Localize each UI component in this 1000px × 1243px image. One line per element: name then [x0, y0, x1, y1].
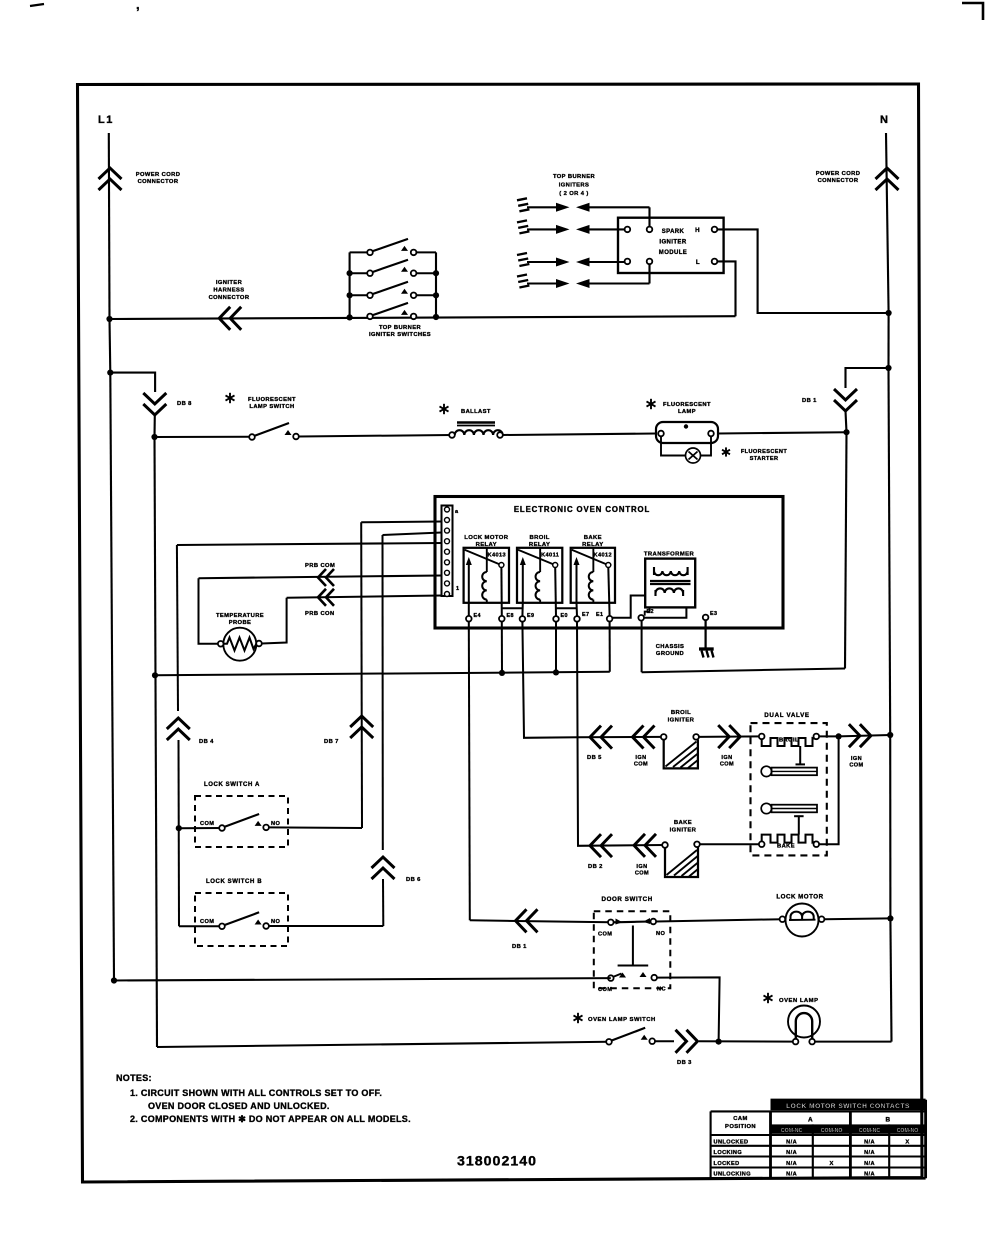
svg-text:LAMP: LAMP	[678, 409, 696, 415]
svg-text:1. CIRCUIT SHOWN WITH ALL CONT: 1. CIRCUIT SHOWN WITH ALL CONTROLS SET T…	[130, 1088, 382, 1098]
svg-text:BALLAST: BALLAST	[461, 409, 491, 415]
svg-text:COM-NC: COM-NC	[859, 1128, 881, 1134]
svg-text:TEMPERATURE: TEMPERATURE	[216, 613, 264, 619]
svg-text:FLUORESCENT: FLUORESCENT	[663, 402, 711, 408]
svg-text:K4012: K4012	[594, 553, 612, 559]
svg-text:LOCK MOTOR: LOCK MOTOR	[776, 894, 823, 901]
svg-text:TRANSFORMER: TRANSFORMER	[644, 552, 695, 558]
svg-text:NO: NO	[656, 931, 665, 937]
svg-text:B: B	[885, 1116, 890, 1123]
svg-text:POWER CORD: POWER CORD	[816, 171, 861, 177]
svg-text:DB 1: DB 1	[512, 944, 527, 950]
svg-text:DB 2: DB 2	[588, 864, 603, 870]
svg-text:IGNITER: IGNITER	[668, 717, 695, 723]
svg-text:DB 8: DB 8	[177, 401, 192, 407]
svg-text:CONNECTOR: CONNECTOR	[138, 179, 179, 185]
svg-text:COM-NO: COM-NO	[821, 1128, 843, 1134]
svg-text:IGNITER SWITCHES: IGNITER SWITCHES	[369, 332, 431, 338]
svg-text:LAMP SWITCH: LAMP SWITCH	[249, 404, 294, 410]
svg-text:DB 1: DB 1	[802, 398, 817, 404]
svg-text:COM: COM	[634, 762, 648, 768]
svg-text:X: X	[829, 1161, 833, 1167]
svg-text:CHASSIS: CHASSIS	[656, 644, 685, 650]
svg-text:CONNECTOR: CONNECTOR	[818, 178, 859, 184]
svg-text:N/A: N/A	[864, 1139, 875, 1145]
svg-text:N/A: N/A	[864, 1161, 875, 1167]
svg-text:1: 1	[456, 586, 459, 592]
svg-text:COM-NC: COM-NC	[781, 1128, 803, 1134]
svg-text:OVEN LAMP SWITCH: OVEN LAMP SWITCH	[588, 1017, 656, 1023]
svg-text:E3: E3	[710, 611, 717, 617]
svg-text:K4011: K4011	[541, 553, 559, 559]
svg-text:BAKE: BAKE	[584, 535, 602, 541]
svg-text:H: H	[695, 227, 700, 234]
svg-text:COM-NO: COM-NO	[897, 1128, 919, 1134]
svg-text:CONNECTOR: CONNECTOR	[209, 295, 250, 301]
svg-text:POSITION: POSITION	[725, 1124, 756, 1130]
svg-text:LOCK MOTOR SWITCH CONTACTS: LOCK MOTOR SWITCH CONTACTS	[786, 1103, 910, 1110]
svg-text:DB 7: DB 7	[324, 739, 339, 745]
svg-text:TOP BURNER: TOP BURNER	[379, 325, 422, 331]
svg-text:DB 3: DB 3	[677, 1060, 692, 1066]
svg-text:IGN: IGN	[721, 755, 732, 761]
svg-text:CAM: CAM	[733, 1116, 747, 1122]
svg-text:IGN: IGN	[636, 864, 647, 870]
svg-text:OVEN LAMP: OVEN LAMP	[779, 998, 819, 1004]
svg-text:,: ,	[136, 0, 140, 12]
svg-text:E9: E9	[527, 613, 534, 619]
svg-text:N/A: N/A	[864, 1172, 875, 1178]
svg-text:HARNESS: HARNESS	[213, 287, 244, 293]
svg-text:N/A: N/A	[864, 1150, 875, 1156]
svg-text:STARTER: STARTER	[750, 456, 779, 462]
svg-text:IGN: IGN	[851, 756, 862, 762]
svg-text:E0: E0	[561, 613, 568, 619]
svg-text:IGN: IGN	[635, 755, 646, 761]
svg-text:L1: L1	[98, 114, 114, 126]
svg-text:( 2 OR 4 ): ( 2 OR 4 )	[559, 191, 588, 197]
svg-text:BROIL: BROIL	[779, 738, 799, 744]
svg-text:E1: E1	[596, 612, 603, 618]
svg-text:318002140: 318002140	[457, 1154, 537, 1170]
svg-text:DB 5: DB 5	[587, 755, 602, 761]
svg-text:RELAY: RELAY	[476, 542, 497, 548]
svg-text:COM: COM	[635, 871, 649, 877]
svg-text:NO: NO	[271, 821, 280, 827]
svg-text:COM: COM	[849, 763, 863, 769]
svg-text:MODULE: MODULE	[659, 250, 687, 256]
svg-text:OVEN DOOR CLOSED AND UNLOCKED.: OVEN DOOR CLOSED AND UNLOCKED.	[148, 1101, 330, 1111]
svg-text:RELAY: RELAY	[582, 542, 603, 548]
svg-text:NO: NO	[271, 919, 280, 925]
svg-text:RELAY: RELAY	[529, 542, 550, 548]
svg-text:BROIL: BROIL	[529, 535, 549, 541]
svg-text:COM: COM	[598, 987, 612, 993]
svg-text:E4: E4	[474, 613, 481, 619]
svg-text:ELECTRONIC OVEN CONTROL: ELECTRONIC OVEN CONTROL	[514, 505, 650, 514]
svg-text:N/A: N/A	[786, 1150, 797, 1156]
svg-text:N: N	[880, 114, 889, 126]
svg-text:SPARK: SPARK	[662, 229, 685, 235]
svg-text:POWER CORD: POWER CORD	[136, 172, 181, 178]
svg-text:LOCKING: LOCKING	[714, 1150, 743, 1156]
svg-text:LOCK SWITCH A: LOCK SWITCH A	[204, 782, 260, 788]
svg-text:LOCK SWITCH B: LOCK SWITCH B	[206, 879, 262, 885]
svg-text:IGNITER: IGNITER	[216, 280, 243, 286]
svg-text:FLUORESCENT: FLUORESCENT	[741, 449, 788, 455]
svg-text:LOCK MOTOR: LOCK MOTOR	[464, 535, 508, 541]
svg-text:K4013: K4013	[488, 553, 506, 559]
svg-text:UNLOCKED: UNLOCKED	[714, 1139, 749, 1145]
svg-text:BAKE: BAKE	[674, 820, 692, 826]
svg-text:PRB CON: PRB CON	[305, 611, 335, 617]
svg-text:DOOR SWITCH: DOOR SWITCH	[602, 896, 653, 903]
svg-text:IGNITERS: IGNITERS	[559, 183, 590, 189]
svg-text:L: L	[696, 259, 700, 266]
svg-text:DB 6: DB 6	[406, 877, 421, 883]
svg-text:BAKE: BAKE	[777, 844, 795, 850]
svg-text:FLUORESCENT: FLUORESCENT	[248, 397, 296, 403]
svg-text:PRB COM: PRB COM	[305, 563, 335, 569]
svg-text:NC: NC	[657, 987, 666, 993]
svg-text:2. COMPONENTS WITH ✻ DO NOT AP: 2. COMPONENTS WITH ✻ DO NOT APPEAR ON AL…	[130, 1114, 411, 1124]
svg-text:COM: COM	[720, 762, 734, 768]
svg-text:TOP BURNER: TOP BURNER	[553, 174, 596, 180]
svg-text:E7: E7	[582, 612, 589, 618]
svg-text:IGNITER: IGNITER	[670, 827, 697, 833]
svg-text:LOCKED: LOCKED	[714, 1161, 740, 1167]
svg-text:COM: COM	[598, 932, 612, 938]
svg-text:GROUND: GROUND	[656, 651, 684, 657]
svg-text:X: X	[905, 1139, 909, 1145]
svg-text:N/A: N/A	[786, 1139, 797, 1145]
svg-text:a: a	[455, 509, 459, 515]
svg-text:E8: E8	[507, 613, 514, 619]
svg-text:UNLOCKING: UNLOCKING	[714, 1172, 751, 1178]
svg-text:COM: COM	[200, 919, 214, 925]
svg-text:DUAL VALVE: DUAL VALVE	[764, 712, 810, 719]
svg-text:COM: COM	[200, 821, 214, 827]
svg-text:N/A: N/A	[786, 1172, 797, 1178]
svg-text:PROBE: PROBE	[229, 620, 252, 626]
svg-text:DB 4: DB 4	[199, 739, 214, 745]
svg-text:N/A: N/A	[786, 1161, 797, 1167]
svg-text:A: A	[808, 1116, 813, 1123]
svg-text:NOTES:: NOTES:	[116, 1073, 152, 1083]
svg-text:IGNITER: IGNITER	[659, 240, 686, 246]
svg-text:BROIL: BROIL	[671, 710, 691, 716]
